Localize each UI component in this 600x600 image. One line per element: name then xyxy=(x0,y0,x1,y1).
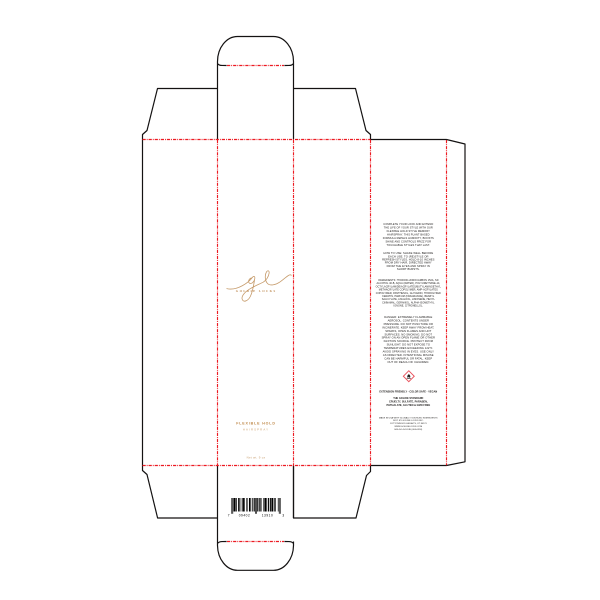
svg-text:CAN BE HARMFUL OR FATAL. KEEP: CAN BE HARMFUL OR FATAL. KEEP xyxy=(384,357,432,361)
svg-text:FLEXIBLE HOLD STYLE MEMORY: FLEXIBLE HOLD STYLE MEMORY xyxy=(387,229,431,233)
svg-text:IONONE, CITRONELLOL.: IONONE, CITRONELLOL. xyxy=(394,305,424,308)
svg-text:AS DIRECTED. INTENTIONAL MISUS: AS DIRECTED. INTENTIONAL MISUSE xyxy=(383,353,434,357)
svg-text:844-GO-GOLDIE (464-6534): 844-GO-GOLDIE (464-6534) xyxy=(394,429,422,431)
svg-text:SPARKS, OPEN FLAMES AND HOT: SPARKS, OPEN FLAMES AND HOT xyxy=(385,329,431,333)
svg-text:13910: 13910 xyxy=(262,513,274,517)
svg-text:COMPLETE YOUR LOOK AND EXTEND: COMPLETE YOUR LOOK AND EXTEND xyxy=(383,222,433,226)
svg-text:PHTHALATE, GLUTEN & GMO FREE: PHTHALATE, GLUTEN & GMO FREE xyxy=(386,404,430,407)
svg-text:Net wt. 9 oz: Net wt. 9 oz xyxy=(247,456,266,460)
svg-text:HAIRSPRAY: HAIRSPRAY xyxy=(243,428,269,432)
svg-text:SHINE AND CONTROLS FRIZZ FOR: SHINE AND CONTROLS FRIZZ FOR xyxy=(385,240,431,244)
svg-text:AVOID SPRAYING IN EYES. USE ON: AVOID SPRAYING IN EYES. USE ONLY xyxy=(383,350,435,354)
svg-text:PRESSURE. DO NOT PUNCTURE OR: PRESSURE. DO NOT PUNCTURE OR xyxy=(384,322,433,326)
svg-text:OUT OF REACH OF CHILDREN.: OUT OF REACH OF CHILDREN. xyxy=(387,360,429,364)
svg-text:IGNITION SOURCE. PROTECT FROM: IGNITION SOURCE. PROTECT FROM xyxy=(384,339,434,343)
svg-text:INCINERATE. KEEP AWAY FROM HEA: INCINERATE. KEEP AWAY FROM HEAT, xyxy=(382,325,434,329)
svg-text:3: 3 xyxy=(282,513,284,517)
svg-text:COTTONWOOD HEIGHTS, UT 84121: COTTONWOOD HEIGHTS, UT 84121 xyxy=(390,423,428,425)
svg-text:FLEXIBLE HOLD: FLEXIBLE HOLD xyxy=(236,422,276,426)
svg-text:DIST. BY GOLDIE LOCKS INC.: DIST. BY GOLDIE LOCKS INC. xyxy=(393,420,424,422)
svg-text:TEMPERATURES EXCEEDING 122°F.: TEMPERATURES EXCEEDING 122°F. xyxy=(384,346,433,350)
svg-text:SURFACES. NO SMOKING. DO NOT: SURFACES. NO SMOKING. DO NOT xyxy=(384,332,432,336)
svg-text:AEROSOL. CONTENTS UNDER: AEROSOL. CONTENTS UNDER xyxy=(388,318,429,322)
svg-text:SPRAY ON AN OPEN FLAME OR OTHE: SPRAY ON AN OPEN FLAME OR OTHER xyxy=(382,336,435,340)
svg-text:GOLDIE LOCKS: GOLDIE LOCKS xyxy=(236,289,277,293)
svg-text:DANGER: EXTREMELY FLAMMABLE: DANGER: EXTREMELY FLAMMABLE xyxy=(384,315,432,319)
svg-text:EXTENSION FRIENDLY · COLOR SAF: EXTENSION FRIENDLY · COLOR SAFE · VEGAN xyxy=(379,391,437,394)
svg-text:WWW.GOLDIELOCKS.COM: WWW.GOLDIELOCKS.COM xyxy=(394,426,422,428)
svg-text:THE LIFE OF YOUR STYLE WITH OU: THE LIFE OF YOUR STYLE WITH OUR xyxy=(384,226,433,230)
svg-text:7: 7 xyxy=(228,513,230,517)
svg-text:SUNLIGHT. DO NOT EXPOSE TO: SUNLIGHT. DO NOT EXPOSE TO xyxy=(387,343,430,347)
svg-text:HAIRSPRAY. THIS PLANT BASED: HAIRSPRAY. THIS PLANT BASED xyxy=(387,233,430,237)
svg-text:SHORT BURSTS.: SHORT BURSTS. xyxy=(397,267,420,271)
svg-text:FORMULA REPELS HUMIDITY, BOOST: FORMULA REPELS HUMIDITY, BOOSTS xyxy=(383,236,434,240)
svg-text:TOUCHABLE STYLES THAT LAST.: TOUCHABLE STYLES THAT LAST. xyxy=(387,243,431,247)
svg-text:MADE IN USA WITH GLOBALLY SOUR: MADE IN USA WITH GLOBALLY SOURCED INGRED… xyxy=(379,416,438,419)
svg-text:09402: 09402 xyxy=(239,513,251,517)
